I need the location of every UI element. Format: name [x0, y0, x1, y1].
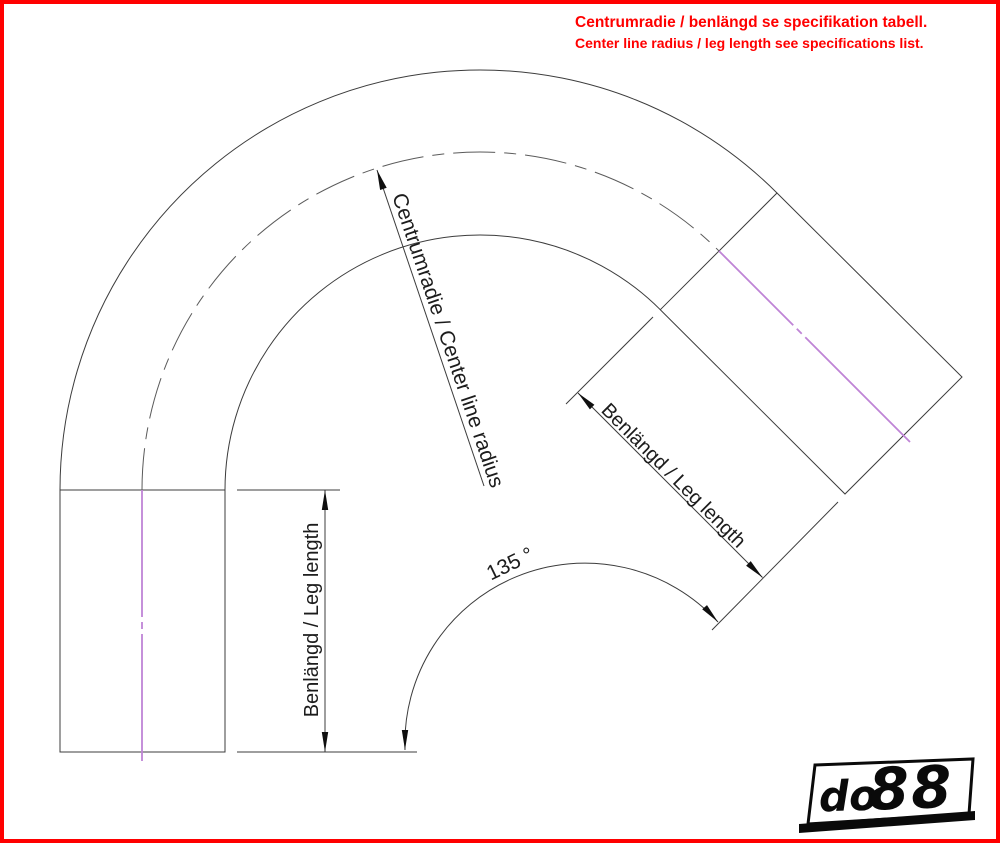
radius-dim-line: [377, 170, 484, 486]
left-dim-arrow-down: [322, 732, 328, 752]
pipe-outline: [60, 70, 962, 752]
right-leg-label: Benlängd / Leg length: [597, 399, 750, 552]
bend-diagram: Benlängd / Leg length Benlängd / Leg len…: [4, 4, 996, 839]
right-dim-arrow-lower: [746, 561, 762, 577]
angle-arrow-right: [702, 605, 718, 622]
radius-dimension: Centrumradie / Center line radius: [377, 170, 508, 491]
logo-text-88: 88: [868, 753, 955, 824]
left-leg-dimension: Benlängd / Leg length: [237, 490, 417, 752]
angle-arrow-left: [402, 730, 408, 750]
right-dim-extension-1: [566, 317, 653, 404]
angle-dimension: 135 °: [402, 543, 718, 750]
right-leg-dimension: Benlängd / Leg length: [566, 317, 838, 630]
right-dim-arrow-upper: [578, 393, 594, 409]
do88-logo-graphic: do 88: [797, 748, 985, 836]
radius-dim-arrow: [377, 170, 387, 190]
left-dim-arrow-up: [322, 490, 328, 510]
centerlines: [142, 152, 910, 761]
angle-arc: [405, 563, 718, 750]
right-leg-centerline: [719, 251, 910, 442]
left-leg-label: Benlängd / Leg length: [301, 523, 323, 718]
drawing-canvas: Centrumradie / benlängd se specifikation…: [0, 0, 1000, 843]
do88-logo: do 88: [797, 748, 985, 836]
